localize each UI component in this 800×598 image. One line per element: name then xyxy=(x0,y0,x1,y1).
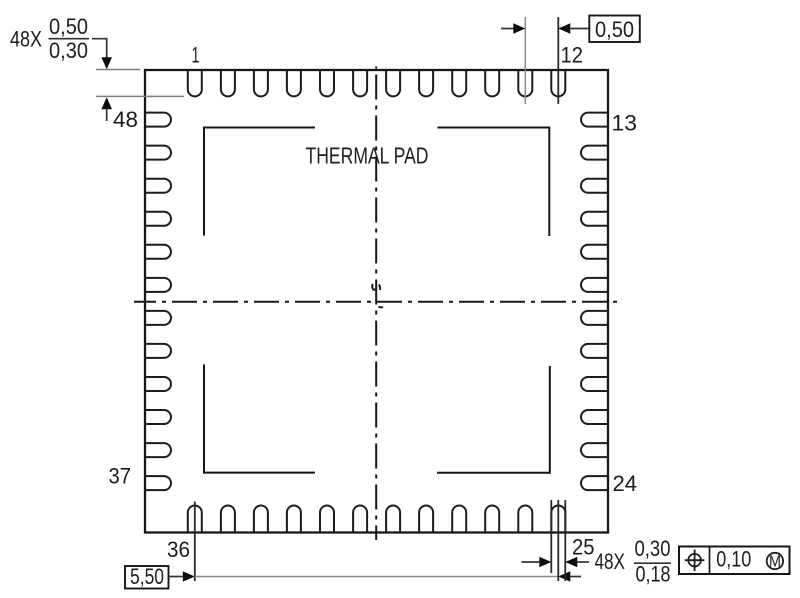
svg-text:24: 24 xyxy=(613,471,638,496)
svg-text:M: M xyxy=(769,554,781,571)
svg-text:12: 12 xyxy=(561,43,584,68)
svg-text:0,30: 0,30 xyxy=(635,536,671,561)
svg-text:48X: 48X xyxy=(595,549,626,574)
svg-text:13: 13 xyxy=(612,111,638,136)
svg-text:48X: 48X xyxy=(10,27,42,52)
svg-text:0,10: 0,10 xyxy=(716,546,751,571)
svg-text:0,50: 0,50 xyxy=(49,14,88,39)
svg-text:5,50: 5,50 xyxy=(130,564,164,589)
svg-text:25: 25 xyxy=(572,534,595,559)
svg-text:THERMAL PAD: THERMAL PAD xyxy=(306,143,429,169)
svg-text:0,18: 0,18 xyxy=(636,562,671,587)
svg-text:0,30: 0,30 xyxy=(49,38,88,63)
svg-text:1: 1 xyxy=(192,42,200,67)
svg-text:48: 48 xyxy=(113,107,138,132)
svg-text:37: 37 xyxy=(109,464,132,489)
svg-text:36: 36 xyxy=(167,537,190,562)
svg-text:0,50: 0,50 xyxy=(595,17,634,42)
